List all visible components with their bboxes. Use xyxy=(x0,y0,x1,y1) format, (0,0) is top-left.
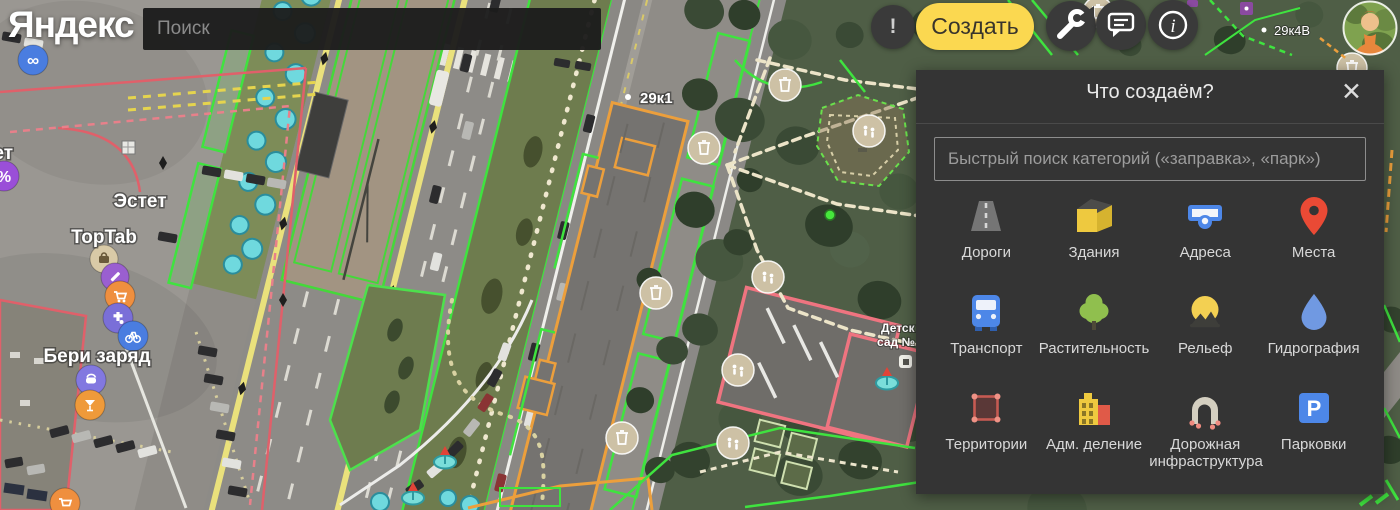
svg-text:%: % xyxy=(0,169,11,186)
category-admin-division[interactable]: Адм. деление xyxy=(1039,386,1150,470)
category-places[interactable]: Места xyxy=(1261,194,1366,290)
category-label: Транспорт xyxy=(950,340,1022,357)
territory-polygon-icon xyxy=(964,386,1008,430)
relief-icon xyxy=(1183,290,1227,334)
user-avatar[interactable] xyxy=(1342,0,1398,56)
map-label-estet: Эстет xyxy=(113,191,166,212)
category-label: Адреса xyxy=(1180,244,1231,261)
search-input[interactable] xyxy=(143,8,601,50)
svg-text:P: P xyxy=(1306,396,1321,421)
map-label-kindergarten-2: сад № xyxy=(877,335,915,349)
map-pin-icon xyxy=(1292,194,1336,238)
category-relief[interactable]: Рельеф xyxy=(1149,290,1261,386)
category-label: Дороги xyxy=(962,244,1011,261)
cocktail-bar-poi xyxy=(75,390,105,420)
bus-icon xyxy=(964,290,1008,334)
category-label: Территории xyxy=(945,436,1027,453)
category-label: Дорожная инфраструктура xyxy=(1149,436,1261,470)
close-icon: ✕ xyxy=(1341,78,1362,106)
map-label-charge: Бери заряд xyxy=(43,346,150,367)
water-drop-icon xyxy=(1292,290,1336,334)
map-label-toptab: TopTab xyxy=(71,227,137,248)
info-icon: i xyxy=(1148,0,1198,50)
close-button[interactable]: ✕ xyxy=(1335,76,1368,108)
svg-text:∞: ∞ xyxy=(27,51,39,70)
comment-icon xyxy=(1096,0,1146,50)
address-plate-icon xyxy=(1183,194,1227,238)
category-label: Гидрография xyxy=(1268,340,1360,357)
category-parking[interactable]: P Парковки xyxy=(1261,386,1366,470)
category-label: Места xyxy=(1292,244,1336,261)
feedback-button[interactable] xyxy=(1096,0,1146,50)
avatar-image xyxy=(1342,0,1398,56)
road-icon xyxy=(964,194,1008,238)
category-label: Здания xyxy=(1069,244,1120,261)
map-label-29k1: 29к1 xyxy=(640,90,673,107)
create-object-panel: Что создаём? ✕ Дороги Здания xyxy=(916,70,1384,494)
parking-icon: P xyxy=(1292,386,1336,430)
divider xyxy=(916,123,1384,124)
category-label: Адм. деление xyxy=(1046,436,1142,453)
address-dot xyxy=(625,94,631,100)
wrench-icon xyxy=(1046,1,1096,51)
admin-buildings-icon xyxy=(1072,386,1116,430)
tools-button[interactable] xyxy=(1046,1,1096,51)
category-addresses[interactable]: Адреса xyxy=(1149,194,1261,290)
category-label: Рельеф xyxy=(1178,340,1232,357)
category-vegetation[interactable]: Растительность xyxy=(1039,290,1150,386)
address-dot xyxy=(1262,28,1267,33)
notifications-button[interactable]: ! xyxy=(871,5,915,49)
category-buildings[interactable]: Здания xyxy=(1039,194,1150,290)
map-editor-app: ∞ % xyxy=(0,0,1400,510)
node-marker xyxy=(825,210,835,220)
category-hydrography[interactable]: Гидрография xyxy=(1261,290,1366,386)
svg-text:i: i xyxy=(1170,16,1175,37)
exclamation-icon: ! xyxy=(890,15,897,39)
category-label: Растительность xyxy=(1039,340,1150,357)
map-label-kindergarten-1: Детск xyxy=(881,321,916,335)
door-icon xyxy=(899,355,912,368)
infinity-poi: ∞ xyxy=(18,45,48,75)
tree-icon xyxy=(1072,290,1116,334)
category-territories[interactable]: Территории xyxy=(934,386,1039,470)
category-roads[interactable]: Дороги xyxy=(934,194,1039,290)
category-road-infrastructure[interactable]: Дорожная инфраструктура xyxy=(1149,386,1261,470)
category-grid: Дороги Здания Адреса xyxy=(934,194,1366,470)
panel-title: Что создаём? xyxy=(916,81,1384,104)
tunnel-icon xyxy=(1183,386,1227,430)
map-label-estet-clipped: Эстет xyxy=(0,143,13,164)
category-label: Парковки xyxy=(1281,436,1346,453)
map-label-29k4v: 29к4В xyxy=(1274,23,1310,38)
create-button[interactable]: Создать xyxy=(916,3,1034,50)
yandex-logo[interactable]: Яндекс xyxy=(8,4,134,46)
kiosk-vent xyxy=(122,141,135,154)
category-transport[interactable]: Транспорт xyxy=(934,290,1039,386)
info-button[interactable]: i xyxy=(1148,0,1198,50)
category-search-input[interactable] xyxy=(934,137,1366,181)
building-icon xyxy=(1072,194,1116,238)
